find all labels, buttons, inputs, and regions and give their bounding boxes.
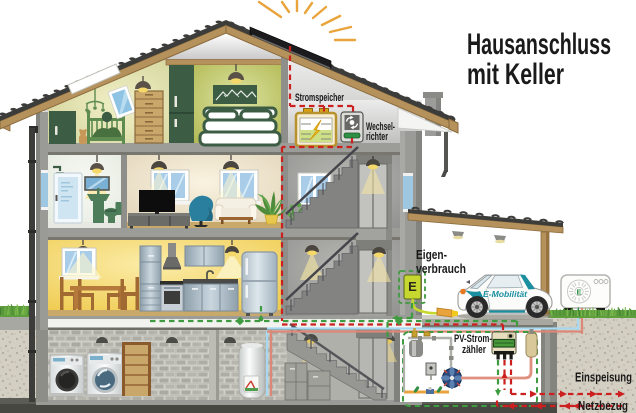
svg-text:Netzbezug: Netzbezug: [578, 398, 628, 413]
svg-text:verbrauch: verbrauch: [416, 262, 466, 276]
svg-text:zähler: zähler: [462, 344, 487, 356]
svg-text:E: E: [576, 287, 581, 296]
svg-text:Stromspeicher: Stromspeicher: [295, 92, 344, 104]
svg-text:Eigen-: Eigen-: [416, 248, 447, 262]
svg-text:mit Keller: mit Keller: [467, 58, 564, 91]
svg-text:E: E: [408, 279, 417, 294]
svg-text:E-Mobilität: E-Mobilität: [483, 290, 527, 299]
svg-text:Hausanschluss: Hausanschluss: [467, 28, 611, 61]
svg-text:richter: richter: [366, 131, 388, 143]
svg-text:Einspeisung: Einspeisung: [575, 370, 632, 385]
